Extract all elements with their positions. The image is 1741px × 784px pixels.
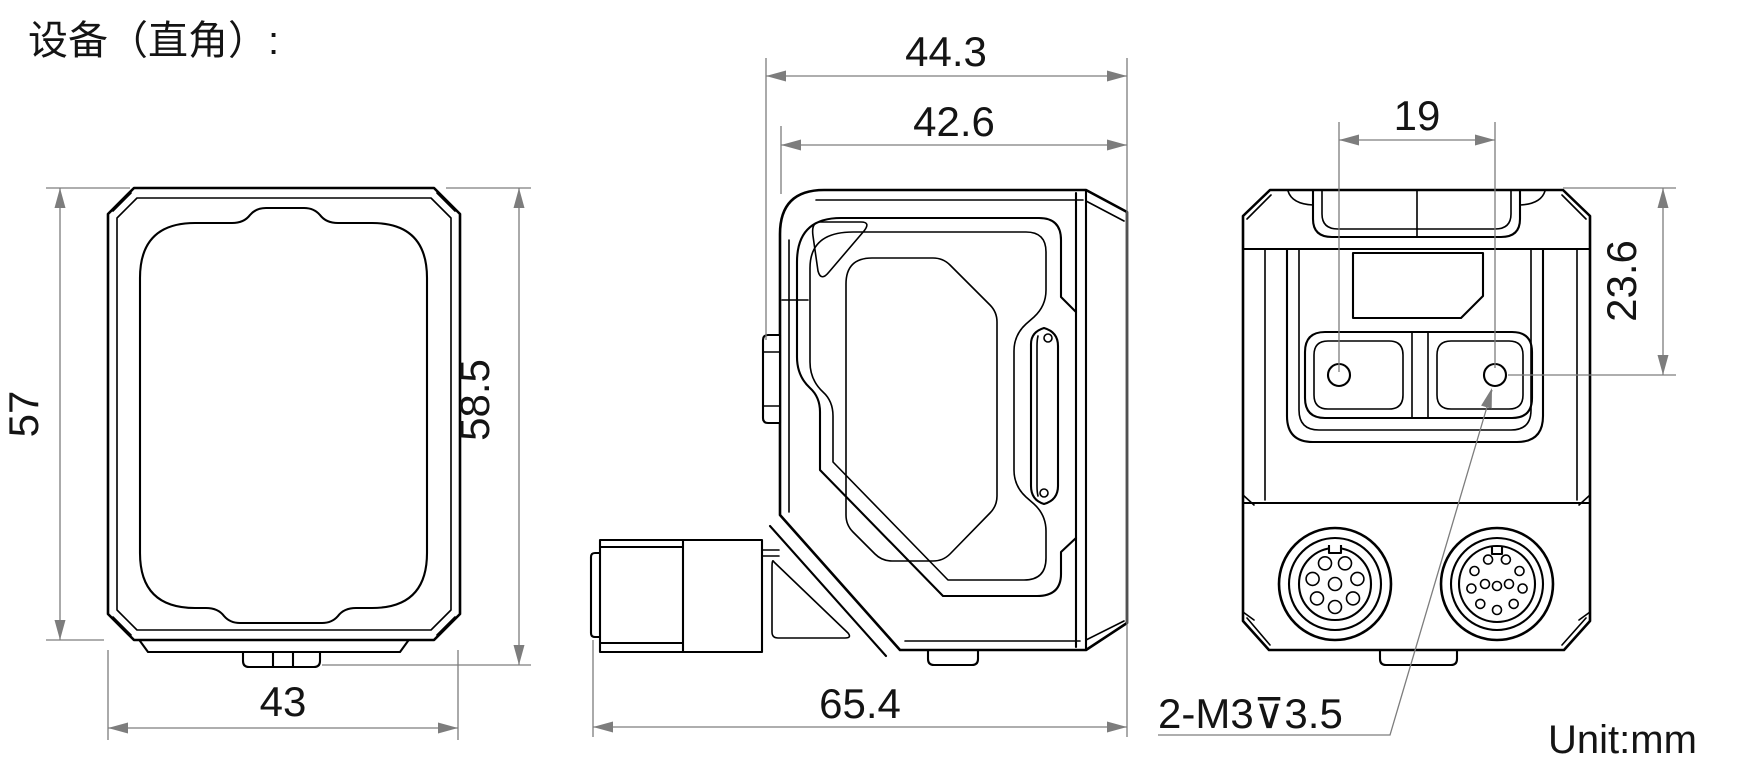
side-contour-outer <box>797 218 1076 596</box>
page-title: 设备（直角）: <box>28 19 279 63</box>
rear-bottom-tab <box>1380 650 1457 665</box>
side-bottom-tab <box>928 650 978 665</box>
front-bottom-tab <box>243 652 320 667</box>
rear-pad-gap <box>1412 332 1428 418</box>
side-diagonal-band <box>770 526 886 656</box>
side-grip-slot <box>1031 328 1058 504</box>
rear-recess-panel-inner <box>1299 249 1531 430</box>
side-topleft-pocket <box>813 222 867 277</box>
rear-connector-8pin <box>1279 528 1391 640</box>
front-body-inner-wall <box>117 198 451 630</box>
dim-text-hole-spacing: 19 <box>1394 92 1441 139</box>
side-view <box>591 190 1127 665</box>
dim-text-body-depth: 42.6 <box>913 98 995 145</box>
dim-text-body-height: 57 <box>0 391 47 438</box>
dim-text-hole-offset: 23.6 <box>1598 240 1645 322</box>
rear-dimension-23-6: 23.6 <box>1508 188 1676 375</box>
connector-pins-8 <box>1306 557 1364 614</box>
side-slot-end-bottom <box>1040 489 1048 497</box>
connector-pins-12 <box>1467 555 1527 614</box>
side-face-edge <box>1076 190 1086 650</box>
front-dimension-43: 43 <box>108 650 458 740</box>
rear-recess-panel <box>1287 249 1543 442</box>
side-left-bump <box>763 335 780 423</box>
dim-text-total-height: 58.5 <box>451 359 498 441</box>
thread-note-text: 2-M3⊽3.5 <box>1158 690 1343 737</box>
technical-drawing-page: 设备（直角）: 57 58.5 43 <box>0 0 1741 784</box>
side-cable-block <box>600 540 762 652</box>
keyway-notch-icon <box>1492 547 1502 554</box>
dim-text-total-depth: 44.3 <box>905 28 987 75</box>
front-lens-window <box>140 208 427 623</box>
rear-view <box>1243 190 1590 665</box>
front-bottom-strip <box>140 641 408 652</box>
dim-text-width: 43 <box>260 678 307 725</box>
side-grip-slot-inner <box>1037 336 1038 496</box>
side-slot-end-top <box>1044 334 1052 342</box>
keyway-notch-icon <box>1329 545 1341 553</box>
side-cable-endcap <box>591 553 600 637</box>
side-dimension-42-6: 42.6 <box>781 98 1127 194</box>
rear-corner-chamfers <box>1243 195 1590 645</box>
front-dimension-57: 57 <box>0 188 130 640</box>
dim-text-total-length: 65.4 <box>819 680 901 727</box>
side-dimension-65-4: 65.4 <box>593 640 1127 737</box>
rear-thread-leader: 2-M3⊽3.5 <box>1158 388 1492 737</box>
side-block-step-lines <box>762 550 779 556</box>
front-body-outline <box>108 188 460 640</box>
rear-top-slot-inner <box>1322 191 1511 237</box>
rear-connector-12pin <box>1441 528 1553 640</box>
rear-body-outline <box>1243 190 1590 650</box>
front-corner-chamfers <box>113 193 455 635</box>
dimension-drawing: 设备（直角）: 57 58.5 43 <box>0 0 1741 784</box>
side-body-inner-walls <box>789 200 1124 641</box>
front-view <box>108 188 460 667</box>
rear-label-window <box>1353 253 1483 318</box>
side-contour-inner-face <box>846 258 997 561</box>
unit-label: Unit:mm <box>1548 718 1697 762</box>
